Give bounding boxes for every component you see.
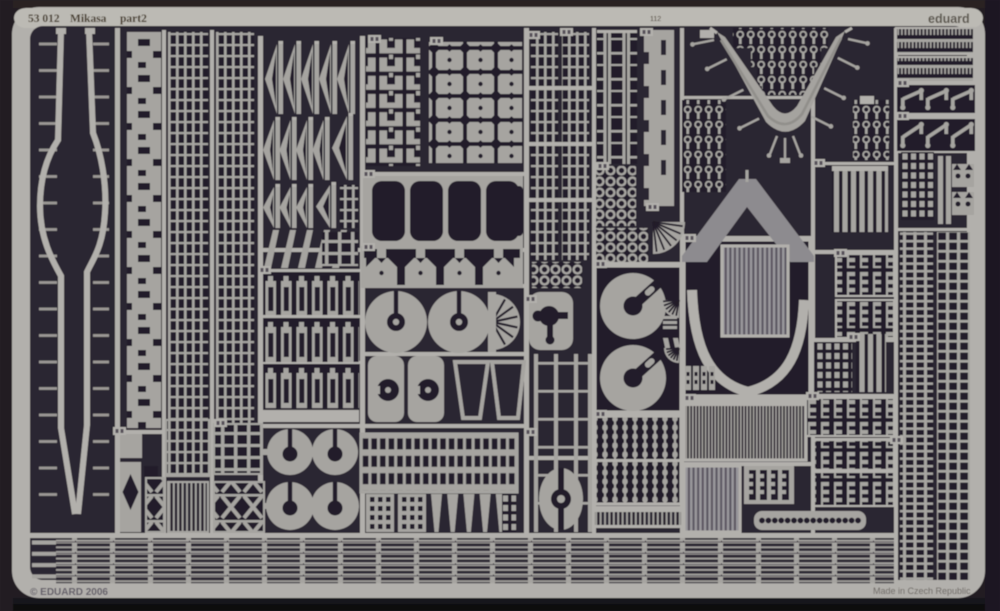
svg-text:53 012: 53 012	[28, 13, 60, 25]
svg-text:part2: part2	[120, 13, 147, 25]
svg-text:Made in Czech Republic: Made in Czech Republic	[873, 586, 971, 596]
svg-text:Mikasa: Mikasa	[70, 13, 107, 25]
svg-text:© EDUARD 2006: © EDUARD 2006	[30, 587, 108, 598]
svg-text:eduard: eduard	[928, 12, 970, 26]
svg-text:112: 112	[650, 16, 661, 23]
